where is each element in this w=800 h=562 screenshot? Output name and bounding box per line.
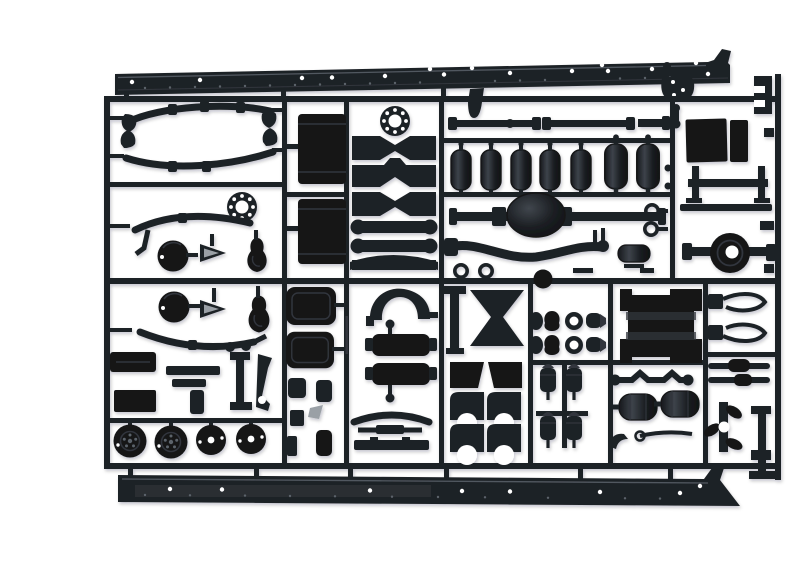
cross-member-4 [351, 220, 438, 235]
steering-knuckle-set-1 [529, 311, 606, 331]
drive-shafts [448, 116, 670, 130]
fuel-tank-half-2 [287, 199, 346, 264]
cross-member-1 [352, 136, 436, 160]
fender-quarter-3 [450, 424, 484, 465]
sprue-photo: Model kit sprue — truck chassis parts fr… [40, 16, 800, 546]
floor-blanks [450, 362, 522, 388]
fan-lever-parts [702, 402, 745, 452]
steering-knuckle-set-2 [529, 335, 606, 355]
tow-rings-lower [455, 265, 654, 289]
x-cross-member [470, 290, 524, 346]
muffler-1 [612, 394, 657, 420]
brake-chamber-1 [540, 364, 556, 400]
brake-drum-1 [158, 241, 199, 272]
seat-cushion-2 [286, 332, 345, 368]
fender-quarter-4 [487, 424, 521, 465]
air-tank-6 [605, 134, 627, 194]
mufflers [612, 391, 699, 420]
teardrop-bracket-1 [247, 230, 266, 272]
sprue-runner-embossed-marking [346, 316, 349, 354]
fuel-tank-half-1 [287, 114, 346, 184]
cross-member-5 [351, 239, 438, 254]
muffler-2 [654, 391, 699, 417]
round-tank-half-1 [365, 320, 437, 357]
fittings-cluster-left [110, 341, 272, 414]
support-bar [680, 204, 772, 211]
small-lever [608, 432, 692, 450]
seat-column-fittings [287, 378, 332, 456]
air-tank-1 [451, 141, 471, 195]
brake-drum-2 [159, 292, 201, 323]
round-tank-half-2 [365, 363, 437, 403]
panel-blanks [685, 118, 748, 162]
wheel-plain-2 [236, 424, 266, 454]
hook-arm-1 [708, 294, 765, 310]
wheel-lugged-1 [114, 425, 147, 458]
wheel-lugged-2 [155, 426, 188, 459]
cross-member-6 [350, 255, 438, 270]
air-tank-2 [481, 141, 501, 195]
battery-box [620, 289, 702, 363]
hook-arm-2 [708, 325, 765, 341]
cross-member-2 [352, 158, 436, 187]
air-tank-3 [511, 141, 531, 195]
road-wheels [114, 421, 267, 459]
seat-cushion-1 [286, 287, 345, 325]
walking-beam [610, 373, 694, 386]
air-tank-4 [540, 141, 560, 195]
banjo-axle-housing [682, 233, 776, 273]
cross-members [350, 136, 438, 270]
brake-chamber-2 [566, 364, 582, 400]
air-reservoirs [451, 134, 659, 195]
shock-absorbers [708, 359, 770, 386]
sprue-frame [104, 74, 781, 480]
fender-quarters [450, 392, 521, 465]
hub-flange-2 [380, 106, 410, 136]
arrow-bracket-1 [200, 234, 226, 262]
cross-member-3 [352, 192, 436, 216]
t-post-bracket [444, 286, 466, 354]
wheel-plain-1 [196, 425, 226, 455]
sprue-graphic: Model kit sprue — truck chassis parts fr… [40, 16, 800, 546]
brake-chambers [540, 364, 582, 448]
arrow-bracket-2 [200, 288, 226, 318]
wheel-arch [366, 289, 438, 326]
teardrop-bracket-2 [249, 286, 270, 332]
leaf-spring-pack-2 [110, 128, 284, 172]
brake-chamber-4 [566, 412, 582, 448]
brake-chamber-3 [540, 412, 556, 448]
rear-axle [449, 193, 666, 237]
air-tank-7 [637, 134, 659, 194]
curved-spring-plate [354, 415, 429, 450]
h-bracket [686, 166, 770, 203]
chassis-rail-top [115, 49, 731, 129]
air-tank-5 [571, 141, 591, 195]
small-air-tank [618, 245, 650, 268]
leaf-spring-pack-1 [110, 101, 284, 132]
chassis-rail-bottom [118, 468, 740, 506]
